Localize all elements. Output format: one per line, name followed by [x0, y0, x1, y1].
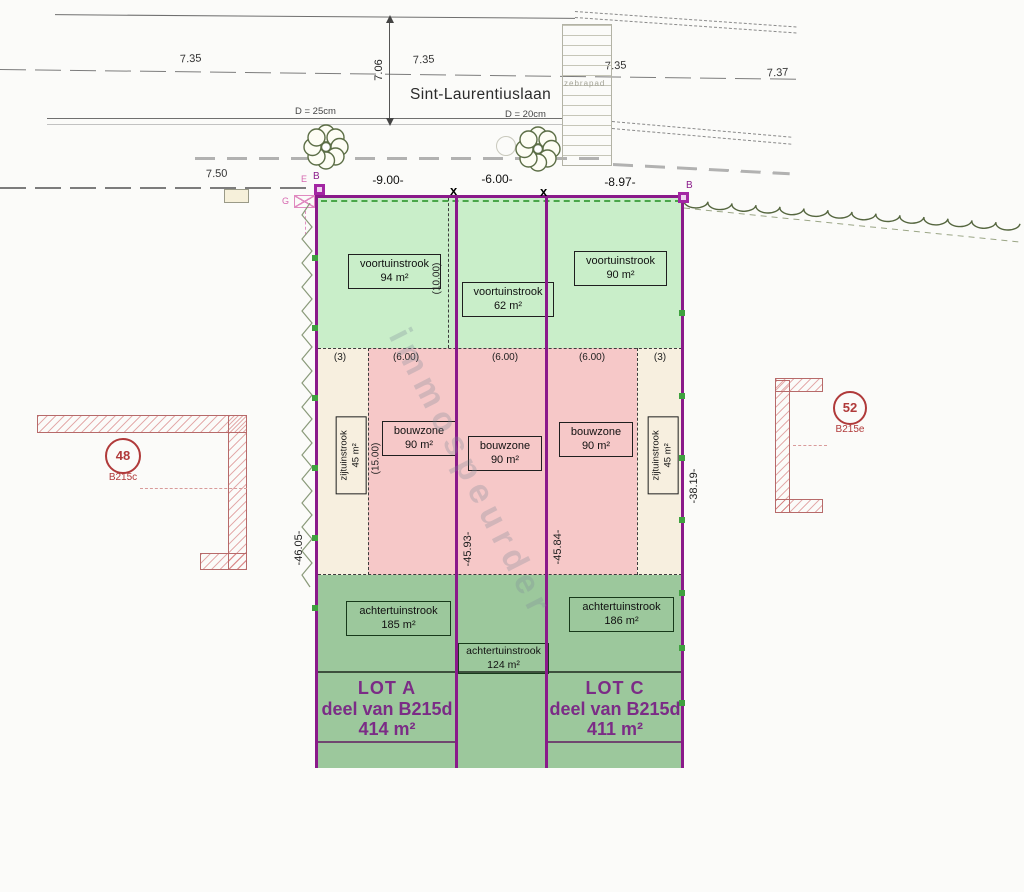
build-b-width-dim: (6.00) — [475, 352, 535, 363]
marker-e-label: E — [301, 174, 307, 184]
hedge-dot — [312, 255, 318, 261]
label-front-garden-b: voortuinstrook 62 m² — [462, 282, 554, 317]
zone-name: achtertuinstrook — [573, 600, 670, 614]
lot-a-title: LOT A — [319, 678, 455, 699]
lot-boundary-right — [681, 197, 684, 768]
lot-c-bottom-line — [547, 741, 682, 743]
lot-depth-right-dim: -38.19- — [688, 459, 700, 513]
front-band-separator — [318, 348, 682, 349]
label-build-zone-b: bouwzone 90 m² — [468, 436, 542, 471]
lot-boundary-top — [317, 195, 685, 198]
neighbor-right-number-circle: 52 — [833, 391, 867, 425]
road-width-dim-label: 7.06 — [373, 50, 385, 90]
zone-area: 90 m² — [563, 439, 629, 453]
boundary-node-right — [678, 192, 689, 203]
zone-name: bouwzone — [472, 439, 538, 453]
tree-symbol-left — [303, 124, 349, 170]
front-depth-dim: (10.00) — [432, 254, 443, 304]
zone-area: 90 m² — [386, 438, 452, 452]
zone-area: 45 m² — [351, 420, 363, 490]
lot-c-title: LOT C — [549, 678, 681, 699]
lot-divider-b-c — [545, 197, 548, 768]
hedge-dashes-top — [321, 200, 681, 202]
zone-area: 62 m² — [466, 299, 550, 313]
neighbor-left-number-circle: 48 — [105, 438, 141, 474]
tree-right-diameter-label: D = 20cm — [505, 109, 546, 120]
neighbor-left-dashed-line — [140, 488, 247, 489]
lot-c-parcel: deel van B215d — [549, 699, 681, 720]
inspection-box-symbol — [224, 189, 249, 203]
gas-marker-label: G — [282, 196, 289, 206]
label-side-strip-c: zijtuinstrook 45 m² — [648, 416, 679, 494]
street-name-label: Sint-Laurentiuslaan — [410, 86, 555, 104]
zone-area: 90 m² — [472, 453, 538, 467]
neighbor-right-parcel-label: B215e — [828, 424, 872, 435]
hedge-dot — [679, 310, 685, 316]
lot-c-title-block: LOT C deel van B215d 411 m² — [549, 678, 681, 740]
curb-dashes-right — [613, 163, 790, 175]
sidewalk-dim-label: 7.50 — [206, 168, 228, 181]
road-centerline — [0, 69, 798, 80]
road-north-edge-line — [55, 14, 575, 19]
hedge-dot — [312, 395, 318, 401]
lot-a-title-block: LOT A deel van B215d 414 m² — [319, 678, 455, 740]
hedge-line-right — [684, 194, 1024, 254]
marker-b-left-label: B — [313, 171, 320, 182]
dim-arrow-down — [386, 118, 394, 126]
frontage-line-left — [0, 187, 316, 189]
marker-b-right-label: B — [686, 180, 693, 191]
lot-b-width-dim: -6.00- — [467, 172, 527, 186]
lot-a-bottom-line — [318, 741, 456, 743]
lot-a-area: 414 m² — [319, 719, 455, 740]
build-a-width-dim: (6.00) — [376, 352, 436, 363]
zone-name: bouwzone — [386, 424, 452, 438]
zone-name: zijtuinstrook — [339, 420, 351, 490]
label-side-strip-a: zijtuinstrook 45 m² — [336, 416, 367, 494]
tree-left-diameter-label: D = 25cm — [295, 106, 336, 117]
neighbor-right-dashed-line — [793, 445, 827, 446]
label-front-garden-a: voortuinstrook 94 m² — [348, 254, 441, 289]
elevation-label-far-right: 7.37 — [767, 66, 789, 79]
zone-area: 185 m² — [350, 618, 447, 632]
label-back-garden-c: achtertuinstrook 186 m² — [569, 597, 674, 632]
label-back-garden-b: achtertuinstrook 124 m² — [458, 643, 549, 674]
boundary-cross-marker-2: x — [540, 184, 547, 199]
utility-circle-symbol — [496, 136, 516, 156]
hedge-dot — [679, 645, 685, 651]
elevation-label-mid: 7.35 — [413, 53, 435, 66]
lot-c-width-dim: -8.97- — [590, 175, 650, 189]
subdivision-plan: 7.35 7.35 7.35 7.37 7.06 Sint-Laurentius… — [0, 0, 1024, 768]
neighbor-left-wall-right — [228, 415, 247, 570]
zone-name: achtertuinstrook — [459, 645, 548, 659]
elevation-label-left: 7.35 — [180, 52, 202, 65]
lot-divider-a-b — [455, 197, 458, 768]
hedge-dot — [679, 455, 685, 461]
zone-area: 186 m² — [573, 614, 670, 628]
build-c-width-dim: (6.00) — [562, 352, 622, 363]
road-south-edge-line — [47, 118, 562, 119]
hedge-dot — [679, 590, 685, 596]
lot-depth-left-dim: -46.05- — [293, 521, 305, 575]
back-band-separator — [318, 574, 682, 575]
zebra-crossing — [562, 24, 612, 166]
hedge-dot — [312, 535, 318, 541]
lot-depth-a-b-dim: -45.93- — [462, 522, 474, 576]
zone-name: bouwzone — [563, 425, 629, 439]
build-depth-dim: (15.00) — [371, 434, 382, 484]
hedge-dot — [679, 393, 685, 399]
neighbor-right-wall-bottom — [775, 499, 823, 513]
dim-arrow-up — [386, 15, 394, 23]
zone-name: achtertuinstrook — [350, 604, 447, 618]
road-width-dim-line — [389, 22, 390, 120]
side-strip-separator-right — [637, 348, 638, 575]
hedge-dot — [679, 700, 685, 706]
zone-area: 90 m² — [578, 268, 663, 282]
zone-area: 94 m² — [352, 271, 437, 285]
boundary-cross-marker-1: x — [450, 183, 457, 198]
hedge-dot — [312, 465, 318, 471]
neighbor-left-wall-top — [37, 415, 247, 433]
lot-c-area: 411 m² — [549, 719, 681, 740]
neighbor-right-wall-top — [775, 378, 823, 392]
label-build-zone-a: bouwzone 90 m² — [382, 421, 456, 456]
boundary-node-left — [314, 184, 325, 195]
neighbor-left-wall-bottom — [200, 553, 247, 570]
zone-area: 124 m² — [459, 659, 548, 673]
lot-a-width-dim: -9.00- — [358, 173, 418, 187]
side-strip-separator-left — [368, 348, 369, 575]
neighbor-left-parcel-label: B215c — [101, 472, 145, 483]
label-back-garden-a: achtertuinstrook 185 m² — [346, 601, 451, 636]
lot-depth-b-c-dim: -45.84- — [552, 520, 564, 574]
side-left-width-dim: (3) — [320, 352, 360, 363]
road-south-edge-dashed-2 — [612, 128, 791, 145]
tree-symbol-right — [515, 126, 561, 172]
label-front-garden-c: voortuinstrook 90 m² — [574, 251, 667, 286]
zone-area: 45 m² — [663, 420, 675, 490]
hedge-dot — [679, 517, 685, 523]
hedge-dot — [312, 325, 318, 331]
zebra-crossing-label: zebrapad — [564, 79, 605, 88]
zone-name: voortuinstrook — [578, 254, 663, 268]
lot-boundary-left — [315, 195, 318, 768]
lot-a-parcel: deel van B215d — [319, 699, 455, 720]
neighbor-right-wall-left — [775, 380, 790, 513]
zone-name: voortuinstrook — [352, 257, 437, 271]
label-build-zone-c: bouwzone 90 m² — [559, 422, 633, 457]
hedge-dot — [312, 605, 318, 611]
side-right-width-dim: (3) — [640, 352, 680, 363]
zone-name: voortuinstrook — [466, 285, 550, 299]
zone-name: zijtuinstrook — [651, 420, 663, 490]
front-depth-dim-line — [448, 198, 449, 348]
